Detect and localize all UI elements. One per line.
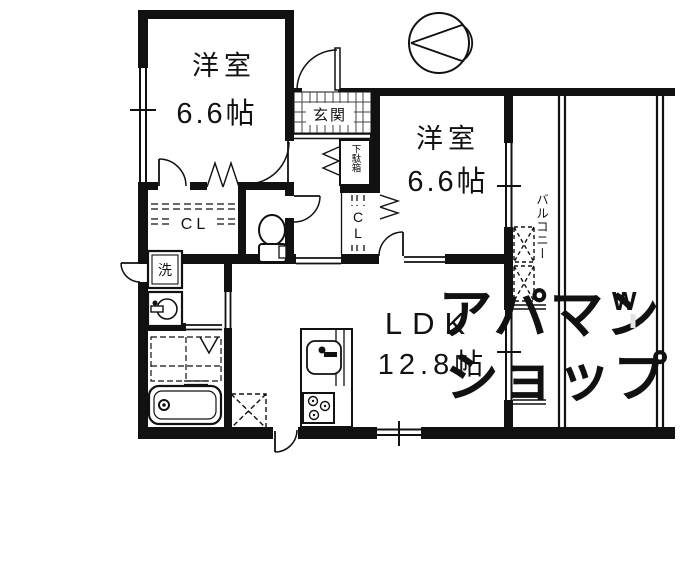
bedroom1-label: 洋室 <box>192 51 256 81</box>
bathtub-icon <box>149 386 221 424</box>
closet2-label: CL <box>350 209 366 241</box>
ldk-size: 12.8帖 <box>378 348 488 381</box>
bathroom-area <box>151 337 221 385</box>
kitchen-counter <box>301 329 352 427</box>
shoe-cabinet-label: 下駄箱 <box>350 144 362 173</box>
closet1-label: CL <box>181 216 209 233</box>
floor-plan-canvas: アパマン ショップ W <box>0 0 690 575</box>
watermark-logo: アパマン ショップ W <box>439 285 669 408</box>
watermark-mark: W <box>612 286 637 316</box>
front-door-leaf <box>335 48 340 90</box>
washbasin-icon <box>148 292 182 326</box>
compass-icon <box>409 13 472 73</box>
floor-plan-page: アパマン ショップ W <box>0 0 690 575</box>
ldk-label: LDK <box>385 306 475 341</box>
toilet-icon <box>259 215 286 262</box>
entrance-label: 玄関 <box>313 107 347 124</box>
bedroom2-label: 洋室 <box>416 124 480 154</box>
stove-icon <box>303 393 334 423</box>
balcony-label: バルコニー <box>534 193 548 261</box>
laundry-label: 洗 <box>158 262 172 278</box>
bedroom1-size: 6.6帖 <box>176 97 257 130</box>
bedroom2-size: 6.6帖 <box>407 165 488 198</box>
kitchen-sink-icon <box>307 341 341 374</box>
refrigerator-space <box>231 394 266 428</box>
